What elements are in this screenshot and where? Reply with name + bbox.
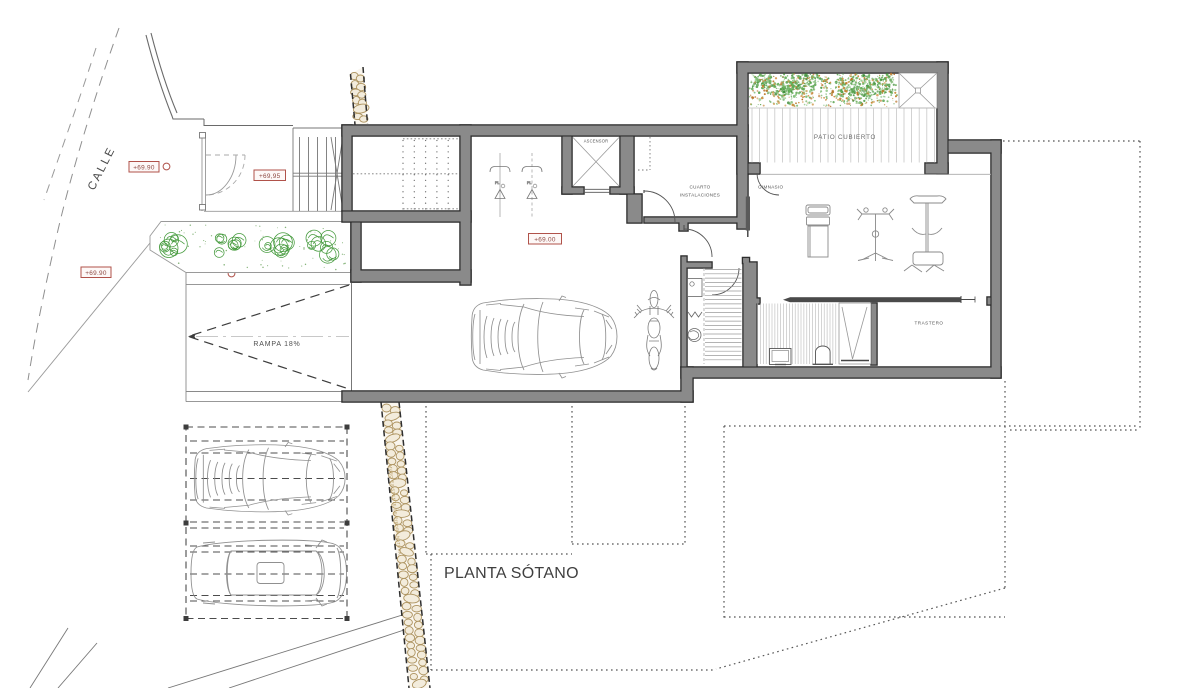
svg-text:+69.90: +69.90	[85, 270, 107, 277]
svg-text:CUARTO: CUARTO	[689, 185, 710, 190]
svg-text:GIMNASIO: GIMNASIO	[758, 185, 783, 190]
svg-text:TRASTERO: TRASTERO	[914, 321, 943, 326]
svg-text:PATIO CUBIERTO: PATIO CUBIERTO	[814, 134, 876, 141]
svg-text:+69.00: +69.00	[534, 236, 556, 243]
svg-text:INSTALACIONES: INSTALACIONES	[680, 193, 720, 198]
svg-text:ASCENSOR: ASCENSOR	[584, 139, 609, 144]
svg-text:+69,95: +69,95	[259, 173, 281, 180]
svg-text:+69.90: +69.90	[133, 164, 155, 171]
svg-text:PLANTA SÓTANO: PLANTA SÓTANO	[444, 563, 579, 582]
svg-text:RAMPA 18%: RAMPA 18%	[253, 341, 300, 348]
svg-text:PL: PL	[527, 181, 531, 185]
svg-text:PL: PL	[495, 181, 499, 185]
